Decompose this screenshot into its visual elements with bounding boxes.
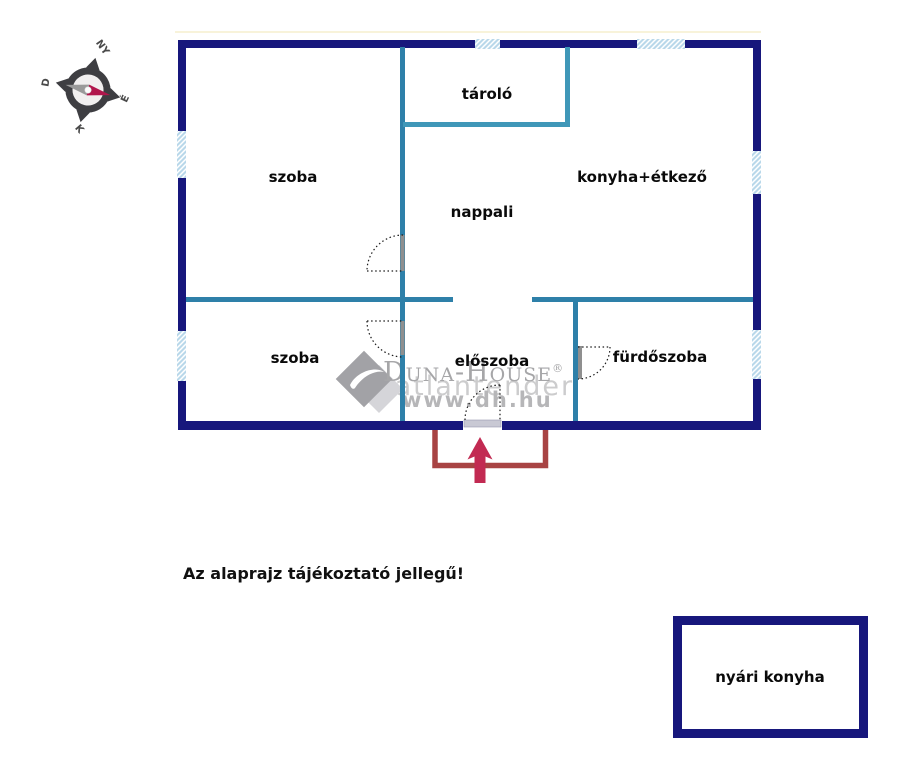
porch-outline xyxy=(435,430,546,466)
compass-rose xyxy=(48,50,127,129)
entrance-sill xyxy=(464,420,501,427)
window-right-lower xyxy=(752,330,761,379)
compass-label-south: D xyxy=(40,78,52,88)
wall-szoba-divider xyxy=(400,47,405,421)
window-left-upper xyxy=(177,131,186,178)
compass-icon: NY D É K xyxy=(38,26,146,144)
window-top-right xyxy=(637,39,685,49)
wall-tarolo-bottom xyxy=(403,122,570,127)
room-label-nyari-konyha: nyári konyha xyxy=(715,668,824,686)
compass-label-east: K xyxy=(72,123,86,137)
window-left-lower xyxy=(177,331,186,381)
room-label-tarolo: tároló xyxy=(462,85,512,103)
door-arc-szoba-upper xyxy=(367,235,403,271)
wall-horizontal-left xyxy=(186,297,453,302)
wall-horizontal-right xyxy=(532,297,753,302)
window-right-upper xyxy=(752,151,761,194)
room-label-szoba-bottom: szoba xyxy=(271,349,320,367)
door-arc-entrance xyxy=(465,385,500,420)
room-label-konyha: konyha+étkező xyxy=(577,168,707,186)
door-leaf-szoba-lower xyxy=(401,321,405,355)
room-label-eloszoba: előszoba xyxy=(455,352,529,370)
room-label-furdoszoba: fürdőszoba xyxy=(613,348,707,366)
wall-furdoszoba xyxy=(573,302,578,421)
room-label-szoba-top: szoba xyxy=(269,168,318,186)
disclaimer-text: Az alaprajz tájékoztató jellegű! xyxy=(183,564,464,583)
compass-label-north: É xyxy=(117,93,132,105)
door-arc-szoba-lower xyxy=(367,321,403,357)
wall-tarolo-right xyxy=(565,47,570,127)
floor-plan-page: igatlantender Duna-House® www.dh.hu xyxy=(0,0,898,768)
entrance-arrow-icon xyxy=(468,437,493,483)
door-arc-furdoszoba xyxy=(578,347,610,379)
door-leaf-szoba-upper xyxy=(401,235,405,271)
compass-label-west: NY xyxy=(93,38,111,58)
door-leaf-furdoszoba xyxy=(578,346,582,379)
room-label-nappali: nappali xyxy=(451,203,514,221)
window-top-left xyxy=(475,39,500,49)
